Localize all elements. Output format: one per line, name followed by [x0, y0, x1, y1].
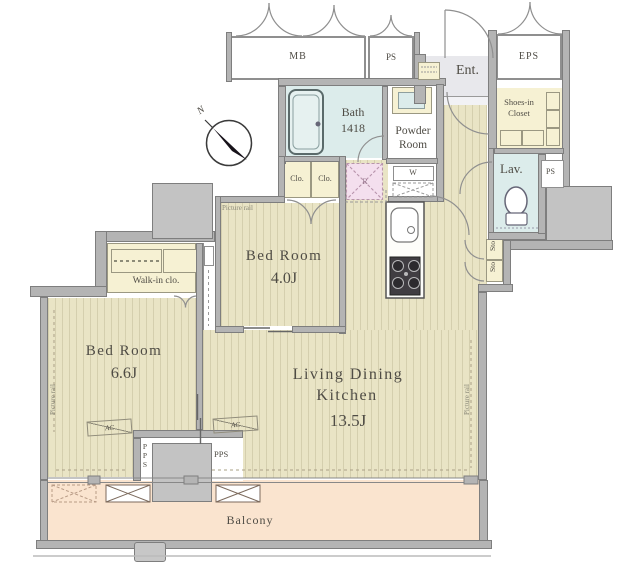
wall	[503, 240, 511, 290]
floor-ldk	[203, 330, 487, 478]
wall	[215, 196, 221, 332]
wall	[278, 156, 346, 162]
door-arc-icon	[370, 15, 391, 36]
bedroom-4j-size: 4.0J	[271, 271, 297, 287]
closet-label: Clo.	[318, 175, 332, 183]
wall	[339, 156, 346, 334]
floor-bath	[286, 86, 382, 158]
bedroom-4j-label: Bed Room	[246, 249, 323, 264]
powder-room-label2: Room	[399, 140, 427, 152]
ldk-size: 13.5J	[330, 412, 366, 429]
door-arc-icon	[530, 2, 562, 34]
entrance-label: Ent.	[456, 64, 479, 78]
wall	[30, 286, 107, 297]
bedroom-6j-label: Bed Room	[86, 344, 163, 359]
wall	[40, 297, 48, 480]
mb-label: MB	[289, 52, 307, 62]
picture-rail-label: Picture rail	[50, 335, 57, 415]
wall-mass	[546, 186, 612, 246]
balcony-wall	[479, 480, 488, 543]
shoes-shelf	[500, 130, 522, 146]
floor-hall	[444, 88, 487, 240]
balcony-wall	[40, 480, 48, 543]
pillar	[152, 443, 212, 502]
door-arc-icon	[269, 3, 302, 36]
pps-right-label: PPS	[214, 450, 228, 459]
ps-right-label: PS	[546, 168, 555, 176]
shoes-shelf	[546, 92, 560, 110]
compass-icon	[205, 120, 252, 166]
walkin-shelf	[163, 249, 197, 273]
wall	[478, 292, 487, 480]
ac-unit-bed1: AC	[87, 418, 133, 436]
wall	[215, 196, 285, 203]
bath-label: Bath	[342, 106, 365, 118]
north-label: N	[196, 105, 207, 117]
ldk-label2: Kitchen	[316, 388, 377, 404]
balcony-wall	[36, 540, 492, 549]
shoes-closet-label: Shoes-in	[504, 98, 534, 107]
bath-size-label: 1418	[341, 122, 365, 134]
picture-rail-label: Picture rail	[464, 335, 471, 415]
entrance-meter-box	[418, 62, 440, 80]
wall	[226, 32, 232, 82]
door-arc-icon	[303, 5, 334, 36]
wall	[386, 158, 438, 164]
closet-label: Clo.	[290, 175, 304, 183]
wall	[196, 243, 203, 430]
powder-room-label: Powder	[395, 126, 430, 138]
door-arc-icon	[391, 15, 412, 36]
shoes-shelf	[546, 110, 560, 128]
walkin-shelf	[111, 249, 162, 273]
bedroom-6j-size: 6.6J	[111, 366, 137, 382]
wall	[494, 148, 564, 154]
lavatory-label: Lav.	[500, 162, 523, 175]
wall	[436, 84, 444, 202]
wall	[215, 326, 244, 333]
shoes-shelf	[546, 128, 560, 146]
floor-bedroom-4j	[221, 203, 339, 326]
storage-label: Sto	[489, 241, 497, 251]
ac-label: AC	[231, 420, 240, 429]
wall	[278, 86, 286, 164]
wall	[488, 148, 494, 238]
picture-rail-label: Picture rail	[222, 205, 253, 212]
ps-top-label: PS	[386, 53, 396, 62]
ac-unit-ldk: AC	[213, 415, 259, 433]
ldk-label: Living Dining	[293, 367, 404, 383]
floor-balcony	[40, 480, 488, 542]
shoes-shelf	[522, 130, 544, 146]
wall	[503, 240, 613, 250]
door-arc-icon	[498, 2, 530, 34]
balcony-label: Balcony	[227, 514, 274, 526]
front-door-arc-icon	[445, 10, 493, 58]
ac-label: AC	[105, 423, 114, 432]
duct-box	[204, 246, 214, 266]
eps-label: EPS	[519, 52, 539, 62]
wall-mass	[152, 183, 213, 239]
wall	[292, 326, 346, 333]
fridge-label: R	[362, 178, 367, 186]
door-arc-icon	[236, 3, 269, 36]
washer-label: W	[409, 169, 417, 177]
storage-label: Sto	[489, 262, 497, 272]
pps-left-label: PPS	[141, 442, 149, 469]
floor-plan: MB PS EPS Ent. Bath 1418 Powder Room Sho…	[0, 0, 640, 569]
wall	[382, 86, 388, 160]
wall	[478, 284, 513, 292]
wall	[488, 30, 497, 150]
shoes-closet-label2: Closet	[508, 109, 530, 118]
wall	[388, 196, 438, 202]
balcony-divider	[134, 542, 166, 562]
wall	[133, 438, 141, 481]
door-arc-icon	[334, 5, 365, 36]
walkin-closet-label: Walk-in clo.	[133, 277, 180, 287]
